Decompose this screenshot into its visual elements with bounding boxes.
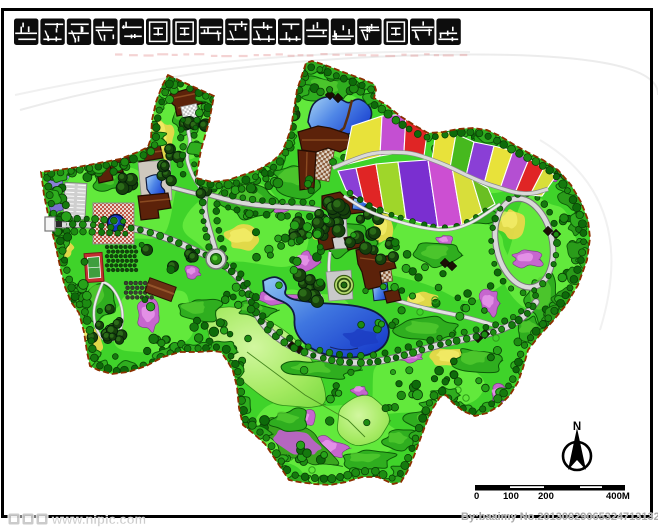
svg-text:By:baaimy No.2013082906532471: By:baaimy No.20130829065324713132 (461, 511, 658, 523)
svg-text:100: 100 (503, 491, 519, 502)
svg-text:400M: 400M (606, 491, 630, 502)
svg-text:0: 0 (474, 491, 479, 502)
svg-text:www.nipic.com: www.nipic.com (51, 512, 146, 527)
svg-text:200: 200 (538, 491, 554, 502)
